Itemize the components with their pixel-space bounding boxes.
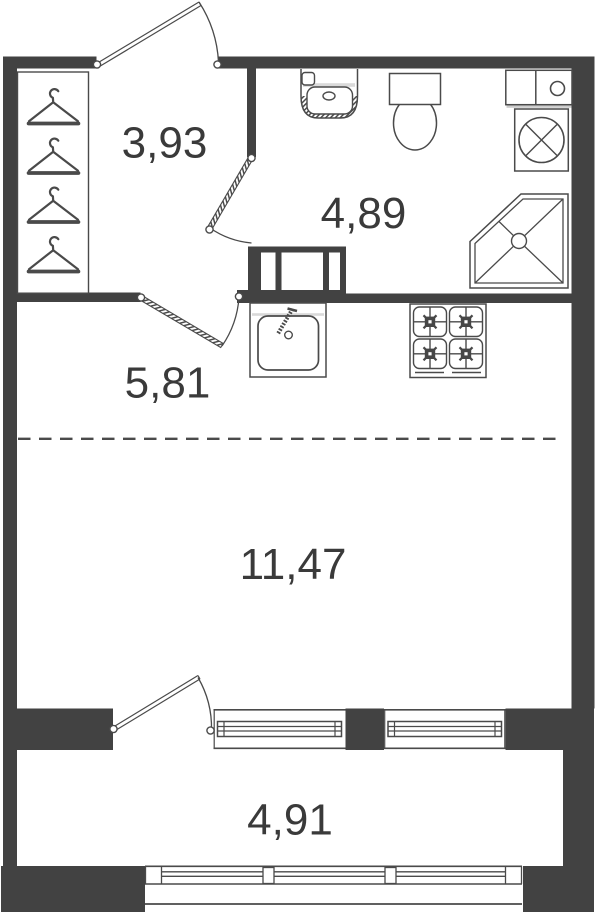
svg-text:3,93: 3,93 [122, 119, 208, 168]
svg-text:4,89: 4,89 [321, 189, 407, 238]
svg-text:11,47: 11,47 [240, 540, 347, 589]
svg-text:5,81: 5,81 [125, 359, 211, 408]
svg-text:4,91: 4,91 [247, 796, 333, 845]
